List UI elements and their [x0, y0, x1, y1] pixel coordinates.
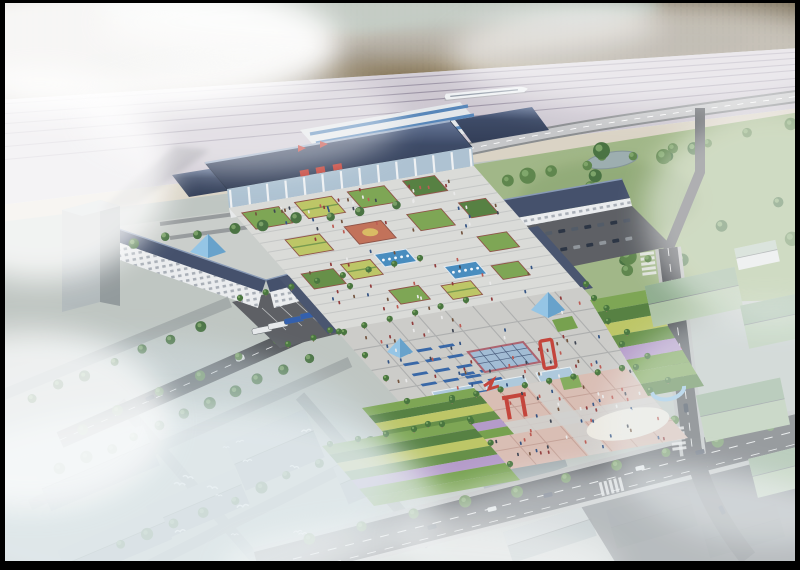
- aerial-rendering: [0, 0, 800, 570]
- haze-wash: [0, 0, 800, 570]
- fog-layer: [0, 0, 800, 570]
- rendering-canvas: [0, 0, 800, 570]
